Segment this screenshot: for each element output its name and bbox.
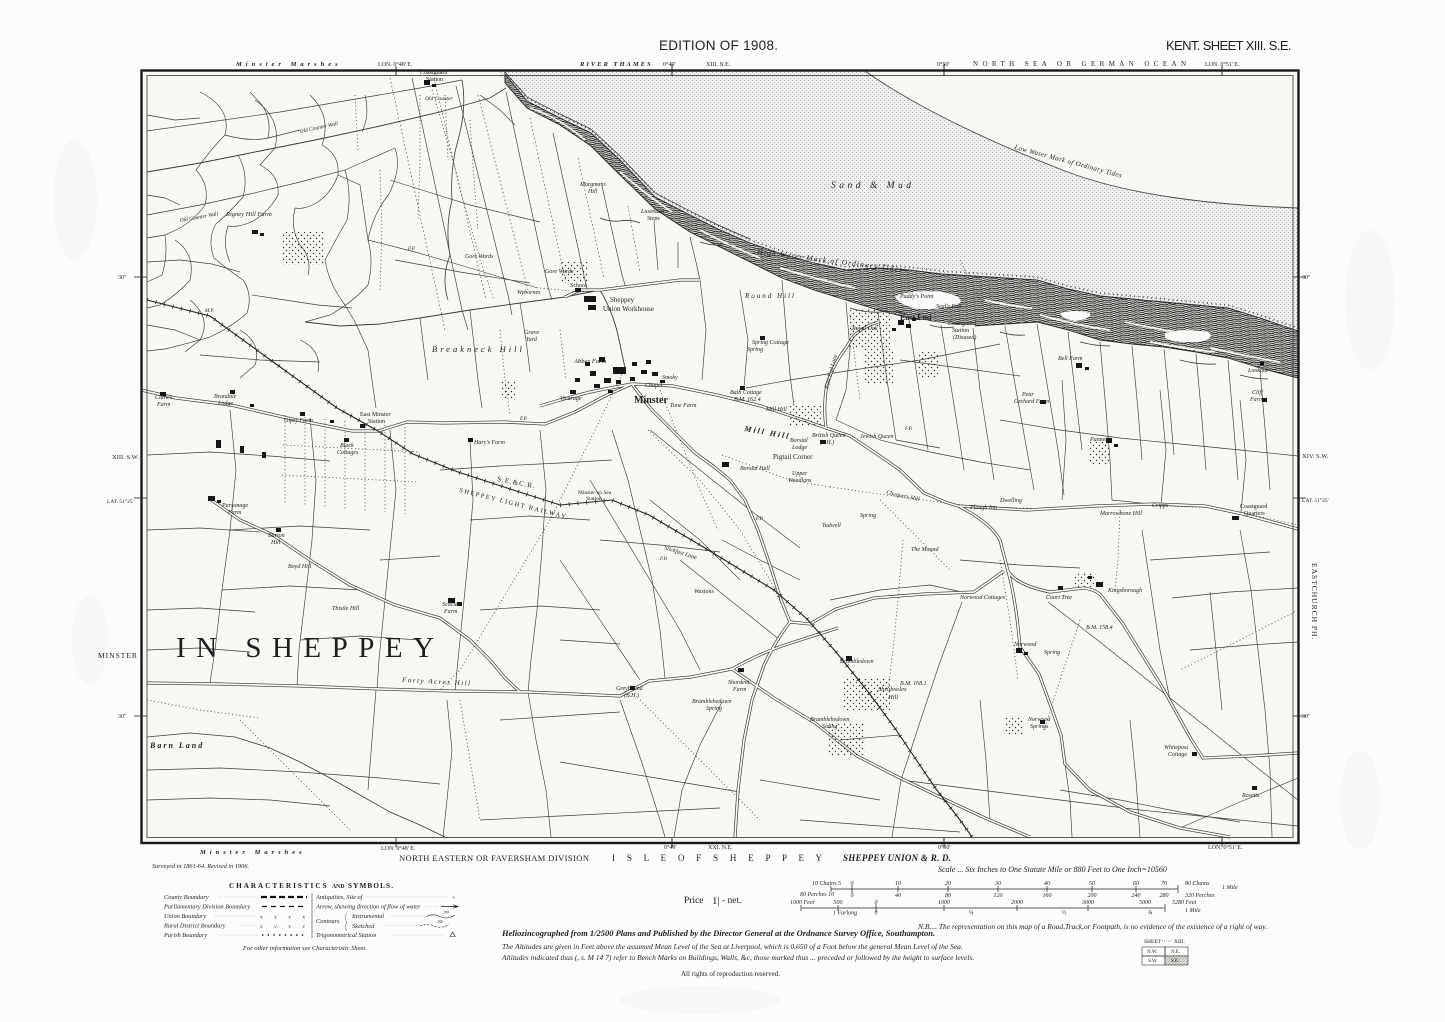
svg-text:Siding: Siding (822, 724, 837, 730)
svg-text:0°49': 0°49' (663, 61, 675, 68)
svg-text:Lodge: Lodge (791, 445, 807, 451)
svg-text:The Mound: The Mound (911, 547, 939, 553)
svg-text:Parish Boundary: Parish Boundary (163, 932, 207, 939)
svg-text:Norwood: Norwood (1013, 642, 1037, 648)
svg-text:Farm: Farm (732, 687, 747, 693)
svg-text:Norwood: Norwood (1027, 717, 1051, 723)
svg-text:The Altitudes are given in Fee: The Altitudes are given in Feet above th… (502, 942, 963, 951)
svg-text:Spring: Spring (747, 347, 763, 353)
svg-text:Spring Cottage: Spring Cottage (752, 340, 789, 346)
svg-text:XIII.: XIII. (1174, 939, 1185, 945)
svg-text:30": 30" (118, 714, 127, 720)
svg-text:0: 0 (875, 900, 878, 906)
svg-text:Breakneck Hill: Breakneck Hill (432, 344, 525, 354)
svg-text:0°49': 0°49' (664, 844, 676, 851)
svg-text:Round Hill: Round Hill (744, 292, 796, 300)
svg-text:Upper: Upper (792, 471, 808, 477)
svg-text:Springs: Springs (1030, 724, 1049, 730)
svg-text:Bramblehedown: Bramblehedown (810, 717, 849, 723)
svg-text:Clark's: Clark's (155, 395, 173, 401)
svg-text:Pear: Pear (1021, 392, 1034, 398)
svg-text:½: ½ (1062, 910, 1067, 917)
svg-text:LON. 0°51' E.: LON. 0°51' E. (1208, 844, 1243, 851)
svg-text:N.E.: N.E. (1171, 950, 1180, 955)
svg-text:Tune Farm: Tune Farm (670, 403, 697, 409)
svg-text:Wybornes: Wybornes (517, 290, 541, 296)
svg-text:70: 70 (1161, 881, 1167, 887)
svg-text:30": 30" (118, 275, 127, 281)
svg-text:XIII. N.E.: XIII. N.E. (706, 62, 731, 68)
svg-text:Hill: Hill (270, 540, 281, 546)
svg-text:5000: 5000 (1139, 900, 1151, 906)
svg-text:Coastguard: Coastguard (1240, 504, 1267, 510)
svg-text:N.B.... The representation on: N.B.... The representation on this map o… (917, 922, 1267, 931)
svg-text:Instrumental: Instrumental (351, 913, 384, 920)
svg-text:Scale ... Six Inches to One St: Scale ... Six Inches to One Statute Mile… (938, 865, 1167, 874)
svg-text:Farm: Farm (1249, 397, 1264, 403)
svg-text:100: 100 (437, 919, 443, 924)
svg-text:Morgmans: Morgmans (579, 182, 606, 188)
svg-text:B.M. 168.1: B.M. 168.1 (900, 681, 927, 687)
svg-text:Marrowbone Hill: Marrowbone Hill (1099, 511, 1142, 517)
svg-text:Arrow, shewing direction of fl: Arrow, shewing direction of flow of wate… (315, 904, 421, 911)
svg-text:Borstal Hall: Borstal Hall (740, 466, 770, 472)
svg-text:LON. 0°51' E.: LON. 0°51' E. (1205, 61, 1240, 68)
svg-text:320 Perches: 320 Perches (1184, 893, 1215, 899)
svg-text:British Queen: British Queen (812, 433, 846, 439)
svg-text:Paddy's Point: Paddy's Point (899, 294, 934, 300)
svg-text:Lodge: Lodge (217, 401, 233, 407)
svg-text:I S L E O F S H E P P E Y: I S L E O F S H E P P E Y (612, 853, 828, 863)
svg-text:Union Boundary: Union Boundary (164, 913, 206, 920)
svg-text:B.M. 162.4: B.M. 162.4 (734, 396, 761, 403)
svg-text:F.P.: F.P. (755, 517, 763, 522)
svg-text:Seal's Fall: Seal's Fall (936, 304, 962, 310)
svg-text:1 Furlong: 1 Furlong (833, 911, 857, 917)
svg-text:Farm: Farm (443, 609, 458, 615)
svg-text:30: 30 (994, 881, 1001, 887)
svg-text:Heliozincographed from 1/2500: Heliozincographed from 1/2500 Plans and … (501, 928, 935, 938)
svg-text:NORTH EASTERN OR FAVERSHAM: NORTH EASTERN OR FAVERSHAM DIVISION (399, 853, 589, 863)
svg-text:F.P.: F.P. (519, 417, 527, 422)
svg-text:KENT. SHEET XIII. S.E.: KENT. SHEET XIII. S.E. (1166, 38, 1292, 53)
svg-text:Minster Marshes: Minster Marshes (235, 61, 342, 68)
svg-text:Farm: Farm (156, 402, 171, 408)
svg-text:Shordent: Shordent (728, 680, 750, 686)
svg-text:Bell Farm: Bell Farm (1058, 356, 1083, 362)
svg-text:N.W.: N.W. (1147, 950, 1157, 955)
svg-text:0°50': 0°50' (937, 61, 949, 68)
svg-text:20: 20 (945, 881, 951, 887)
svg-text:¼: ¼ (969, 911, 974, 917)
svg-text:240: 240 (1132, 892, 1141, 899)
svg-text:Cottage: Cottage (1168, 752, 1187, 758)
svg-text:10: 10 (895, 881, 901, 887)
svg-text:Hill: Hill (587, 189, 598, 195)
svg-text:Yard: Yard (526, 337, 538, 343)
svg-text:LON. 0°48' E.: LON. 0°48' E. (378, 61, 413, 68)
svg-text:For other information see Char: For other information see Characteristic… (242, 945, 367, 952)
svg-text:Kingsborough: Kingsborough (1107, 588, 1142, 594)
svg-text:Coastguard: Coastguard (948, 321, 977, 327)
svg-text:SHEPPEY UNION & R. D.: SHEPPEY UNION & R. D. (843, 853, 951, 863)
svg-text:School: School (570, 283, 587, 289)
svg-text:1 Mile: 1 Mile (1185, 908, 1201, 914)
svg-text:Vicarage: Vicarage (560, 396, 582, 402)
svg-text:Bramblehedown: Bramblehedown (692, 699, 731, 705)
svg-text:M.P.: M.P. (204, 309, 214, 314)
svg-text:Rosetts: Rosetts (1241, 793, 1260, 799)
svg-text:F.P.: F.P. (904, 427, 912, 432)
svg-text:120: 120 (994, 893, 1003, 899)
svg-text:Lookout: Lookout (1247, 368, 1268, 374)
svg-text:Rural District Boundary: Rural District Boundary (163, 923, 226, 930)
svg-text:East End: East End (900, 313, 932, 322)
svg-text:Greyhound: Greyhound (616, 686, 644, 692)
svg-text:Station: Station (586, 496, 602, 502)
svg-text:Royal Oak: Royal Oak (851, 326, 878, 332)
svg-text:40: 40 (1044, 880, 1050, 887)
svg-text:Trigonometrical Station: Trigonometrical Station (316, 932, 376, 939)
svg-text:Surveyed in 1861-64. Revised: Surveyed in 1861-64. Revised in 1906. (152, 863, 249, 870)
svg-text:Gipsy Farm: Gipsy Farm (284, 418, 313, 424)
svg-text:30": 30" (1302, 275, 1311, 281)
svg-text:0: 0 (875, 911, 878, 917)
svg-text:60: 60 (1133, 881, 1139, 887)
svg-text:Station: Station (426, 77, 443, 83)
svg-text:Hary's Farm: Hary's Farm (473, 440, 505, 446)
svg-text:Price: Price (684, 896, 704, 906)
svg-text:200: 200 (1088, 893, 1097, 899)
svg-text:Thistle Hill: Thistle Hill (332, 606, 360, 612)
svg-text:EASTCHURCH PH.: EASTCHURCH PH. (1310, 563, 1319, 640)
svg-text:0: 0 (851, 881, 854, 887)
svg-text:Barn Land: Barn Land (149, 741, 204, 750)
svg-text:Grave: Grave (524, 330, 539, 336)
svg-text:Woodlans: Woodlans (788, 478, 812, 484)
svg-text:SYMBOLS.: SYMBOLS. (348, 882, 395, 890)
svg-text:x x x x: x x x x (260, 915, 310, 921)
svg-text:Minster: Minster (634, 395, 668, 406)
svg-text:3000: 3000 (1081, 900, 1094, 906)
svg-text:B.M. 158.4: B.M. 158.4 (1086, 624, 1113, 631)
svg-text:10 Chains 5: 10 Chains 5 (812, 881, 841, 887)
svg-text:LAT. 51°25': LAT. 51°25' (107, 498, 134, 505)
svg-text:Station: Station (952, 328, 969, 334)
svg-text:Minster Marshes: Minster Marshes (199, 849, 306, 856)
svg-text:Norwood Cottages: Norwood Cottages (959, 595, 1006, 601)
svg-text:Steps: Steps (647, 216, 660, 222)
svg-text:Cottages: Cottages (337, 450, 359, 456)
svg-text:MINSTER: MINSTER (98, 651, 138, 660)
svg-text:1 Mile: 1 Mile (1222, 885, 1238, 891)
svg-text:30": 30" (1302, 714, 1311, 720)
svg-text:280: 280 (1160, 893, 1169, 899)
svg-text:Union Workhouse: Union Workhouse (603, 305, 654, 313)
svg-text:Shrubsoles: Shrubsoles (878, 686, 907, 693)
svg-text:160: 160 (1043, 893, 1052, 899)
svg-text:Bath Cottage: Bath Cottage (730, 390, 762, 396)
svg-text:Rigney Hill Farm: Rigney Hill Farm (225, 211, 272, 218)
svg-text:Black: Black (340, 443, 354, 449)
svg-text:Borstal: Borstal (790, 438, 808, 444)
svg-text:50: 50 (1089, 881, 1095, 887)
svg-text:F.P.: F.P. (659, 557, 667, 562)
svg-text:Pigtail Corner: Pigtail Corner (773, 453, 813, 461)
svg-text:Quarters: Quarters (1244, 511, 1265, 517)
svg-text:Abbey Farm: Abbey Farm (573, 358, 607, 365)
svg-text:East Minster: East Minster (360, 412, 391, 418)
svg-text:Spring: Spring (860, 513, 876, 519)
svg-text:Cliff: Cliff (1252, 389, 1264, 396)
svg-text:Burton: Burton (268, 533, 285, 539)
svg-text:LON. 0°48' E.: LON. 0°48' E. (381, 845, 416, 852)
svg-text:IN SHEPPEY: IN SHEPPEY (176, 632, 445, 664)
svg-text:Gore Wards: Gore Wards (545, 269, 574, 275)
svg-text:Tadwell: Tadwell (822, 523, 841, 529)
svg-text:S.W.: S.W. (1148, 959, 1158, 964)
svg-text:Punnetts: Punnetts (1089, 437, 1112, 443)
svg-text:S.E.: S.E. (1171, 959, 1179, 964)
svg-text:1|: 1| (712, 895, 720, 907)
svg-text:All rights of reproduction res: All rights of reproduction reserved. (681, 970, 780, 978)
svg-text:Antiquities, Site of: Antiquities, Site of (315, 894, 364, 901)
svg-text:100: 100 (443, 910, 449, 915)
svg-text:(B.H.): (B.H.) (624, 692, 639, 699)
svg-text:Cripps: Cripps (1152, 503, 1169, 509)
svg-text:500: 500 (834, 900, 843, 906)
svg-text:EDITION OF 1908.: EDITION OF 1908. (659, 38, 779, 53)
svg-text:0: 0 (851, 893, 854, 899)
svg-text:v v v v: v v v v (260, 924, 310, 930)
svg-text:Sand & Mud: Sand & Mud (831, 181, 915, 191)
svg-text:(Disused): (Disused) (953, 334, 976, 341)
svg-text:¾: ¾ (1148, 911, 1153, 917)
svg-text:Contours: Contours (316, 918, 340, 925)
svg-text:Parliamentary Division Boundar: Parliamentary Division Boundary (163, 904, 250, 911)
svg-text:Wastons: Wastons (694, 589, 714, 595)
svg-text:80 Chains: 80 Chains (1185, 881, 1210, 887)
svg-text:80: 80 (945, 893, 951, 899)
svg-text:Farm: Farm (227, 510, 242, 516)
svg-text:2000: 2000 (1011, 900, 1023, 906)
svg-text:County Boundary: County Boundary (164, 894, 209, 901)
svg-text:F.P.: F.P. (407, 247, 415, 252)
svg-text:Lusenden: Lusenden (640, 209, 664, 215)
svg-text:AND: AND (332, 884, 345, 890)
svg-text:Brambledown: Brambledown (840, 659, 874, 665)
svg-text:Sheppey: Sheppey (610, 296, 635, 304)
svg-text:1000: 1000 (938, 900, 950, 906)
svg-text:XIII. S.W.: XIII. S.W. (112, 454, 139, 461)
svg-text:XIV. S.W.: XIV. S.W. (1302, 453, 1329, 460)
svg-text:Plough Inn: Plough Inn (969, 505, 997, 511)
svg-text:5280 Feet: 5280 Feet (1172, 900, 1196, 906)
svg-text:Scocles: Scocles (442, 602, 461, 608)
svg-text:Smoky: Smoky (662, 375, 678, 381)
svg-text:40: 40 (895, 892, 901, 899)
svg-text:RIVER THAMES: RIVER THAMES (579, 61, 653, 68)
svg-text:Spring: Spring (706, 706, 722, 712)
svg-text:Whitepost: Whitepost (1164, 745, 1188, 751)
svg-text:Parsonage: Parsonage (221, 503, 248, 509)
svg-text:Orchard Farm: Orchard Farm (1014, 399, 1050, 405)
svg-text:Gore Wards: Gore Wards (465, 254, 494, 260)
svg-text:Mill Hill: Mill Hill (765, 407, 787, 413)
svg-text:NORTH SEA OR GERMAN OCEAN: NORTH SEA OR GERMAN OCEAN (973, 60, 1189, 68)
svg-text:SHEET: SHEET (1144, 939, 1162, 945)
svg-text:Chapel: Chapel (645, 383, 663, 389)
svg-text:(P.H.): (P.H.) (820, 439, 834, 446)
svg-text:- net.: - net. (722, 896, 742, 906)
svg-text:Altitudes indicated thus (, s.: Altitudes indicated thus (, s. M 14 7) r… (501, 953, 974, 962)
svg-text:Boyd Hill: Boyd Hill (288, 564, 311, 570)
svg-text:80 Perches 10: 80 Perches 10 (800, 892, 834, 898)
svg-text:XXI. N.E.: XXI. N.E. (708, 845, 733, 851)
svg-text:Spring: Spring (1044, 650, 1060, 656)
svg-text:1000 Feet: 1000 Feet (790, 900, 814, 906)
svg-text:Brandale: Brandale (214, 394, 237, 400)
svg-text:Jewish Queen: Jewish Queen (860, 434, 894, 440)
svg-text:Station: Station (368, 419, 385, 425)
svg-text:Dwelling: Dwelling (999, 498, 1022, 504)
svg-text:Court Tree: Court Tree (1046, 595, 1072, 601)
svg-text:Hill: Hill (887, 694, 898, 701)
svg-text:Old Counter: Old Counter (425, 96, 454, 102)
svg-text:Sketched: Sketched (352, 923, 375, 930)
svg-text:CHARACTERISTICS: CHARACTERISTICS (229, 882, 328, 890)
